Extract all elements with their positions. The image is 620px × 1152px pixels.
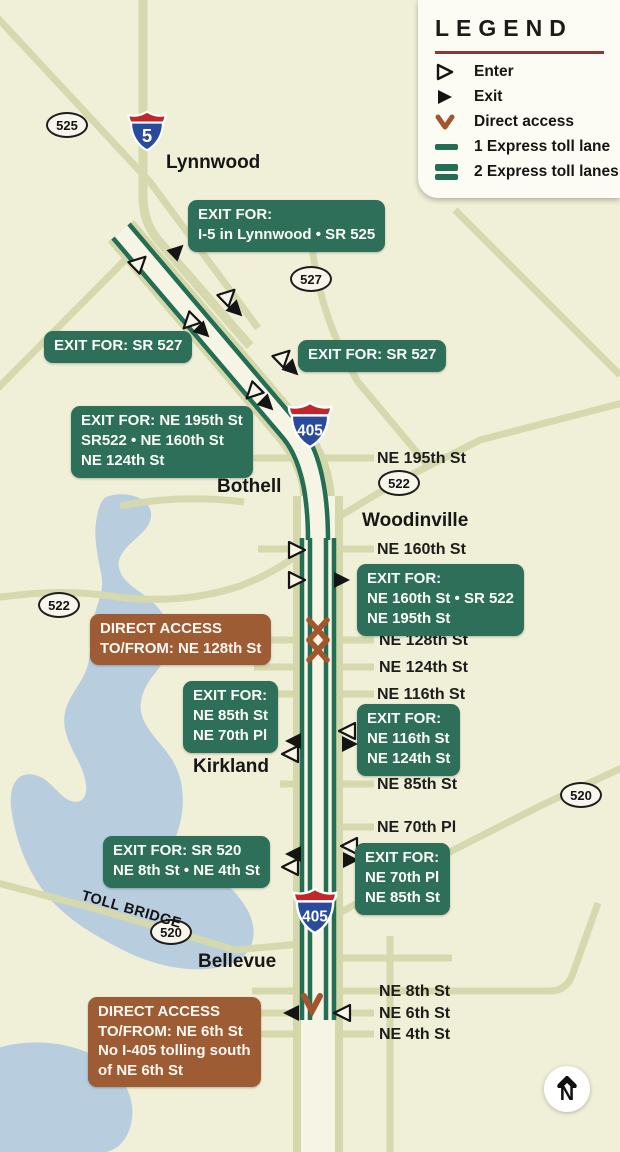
north-indicator: N — [544, 1066, 590, 1112]
city-label-bothell: Bothell — [217, 476, 281, 498]
two-lane-bars-icon — [435, 164, 461, 180]
city-label-lynnwood: Lynnwood — [166, 152, 260, 174]
street-label-ne6: NE 6th St — [379, 1005, 450, 1023]
i405-number: 405 — [297, 423, 323, 440]
enter-arrow-icon — [282, 746, 298, 762]
legend-item-label: Direct access — [474, 113, 574, 131]
legend-item-enter: Enter — [435, 63, 620, 82]
city-label-woodinville: Woodinville — [362, 510, 468, 532]
callout-exit-ne85-group: EXIT FOR: NE 85th St NE 70th Pl — [183, 681, 278, 753]
legend-item-label: Exit — [474, 88, 502, 106]
i405-number: 405 — [302, 909, 328, 926]
legend-item-label: Enter — [474, 63, 514, 81]
i405-shield-north: 405 — [286, 400, 334, 450]
sr525-shield: 525 — [46, 112, 88, 138]
callout-exit-sr527-left: EXIT FOR: SR 527 — [44, 331, 192, 363]
callout-exit-sr527-right: EXIT FOR: SR 527 — [298, 340, 446, 372]
legend-item-two-lanes: 2 Express toll lanes — [435, 163, 620, 182]
legend-title: LEGEND — [435, 15, 620, 42]
sr520-shield-east: 520 — [560, 782, 602, 808]
legend-item-label: 2 Express toll lanes — [474, 163, 619, 181]
city-label-kirkland: Kirkland — [193, 756, 269, 778]
callout-exit-ne160-group: EXIT FOR: NE 160th St • SR 522 NE 195th … — [357, 564, 524, 636]
street-label-ne116: NE 116th St — [377, 686, 465, 704]
street-label-ne70: NE 70th Pl — [377, 819, 456, 837]
legend-item-direct-access: Direct access — [435, 113, 620, 132]
legend-item-label: 1 Express toll lane — [474, 138, 610, 156]
city-label-bellevue: Bellevue — [198, 951, 276, 973]
sr527-number: 527 — [300, 272, 322, 287]
street-label-ne85: NE 85th St — [377, 776, 457, 794]
i405-shield-icon: 405 — [291, 886, 339, 936]
sr522-shield-east: 522 — [378, 470, 420, 496]
sr525-number: 525 — [56, 118, 78, 133]
callout-exit-lynnwood: EXIT FOR: I-5 in Lynnwood • SR 525 — [188, 200, 385, 252]
street-label-ne195: NE 195th St — [377, 450, 466, 468]
legend: LEGEND Enter Exit Direct access 1 Expres… — [418, 0, 620, 198]
enter-arrow-icon — [282, 859, 298, 875]
street-label-ne160: NE 160th St — [377, 541, 466, 559]
one-lane-bar-icon — [435, 144, 461, 151]
street-label-ne8: NE 8th St — [379, 983, 450, 1001]
exit-arrow-icon — [283, 1005, 299, 1021]
callout-exit-sr520-group: EXIT FOR: SR 520 NE 8th St • NE 4th St — [103, 836, 270, 888]
sr520-number: 520 — [570, 788, 592, 803]
i5-shield: 5 — [126, 108, 168, 154]
i405-express-toll-lanes-map: 525 5 527 405 522 522 520 520 405 — [0, 0, 620, 1152]
enter-arrow-icon — [435, 63, 461, 81]
i405-shield-south: 405 — [291, 886, 339, 936]
north-label: N — [560, 1086, 574, 1102]
callout-direct-access-ne128: DIRECT ACCESS TO/FROM: NE 128th St — [90, 614, 271, 665]
street-label-ne124: NE 124th St — [379, 659, 468, 677]
sr522-shield-west: 522 — [38, 592, 80, 618]
i5-number: 5 — [142, 125, 152, 146]
callout-exit-ne116-group: EXIT FOR: NE 116th St NE 124th St — [357, 704, 460, 776]
legend-item-exit: Exit — [435, 88, 620, 107]
legend-rule — [435, 51, 604, 54]
legend-item-one-lane: 1 Express toll lane — [435, 138, 620, 157]
callout-exit-ne70-group: EXIT FOR: NE 70th Pl NE 85th St — [355, 843, 450, 915]
street-label-ne4: NE 4th St — [379, 1026, 450, 1044]
exit-arrow-icon — [435, 88, 461, 106]
sr522-number: 522 — [48, 598, 70, 613]
sr522-number: 522 — [388, 476, 410, 491]
i5-shield-icon: 5 — [126, 108, 168, 154]
callout-exit-ne195-group: EXIT FOR: NE 195th St SR522 • NE 160th S… — [71, 406, 253, 478]
i405-shield-icon: 405 — [286, 400, 334, 450]
direct-access-v-icon — [435, 114, 461, 130]
callout-direct-access-ne6: DIRECT ACCESS TO/FROM: NE 6th St No I-40… — [88, 997, 261, 1087]
sr527-shield: 527 — [290, 266, 332, 292]
